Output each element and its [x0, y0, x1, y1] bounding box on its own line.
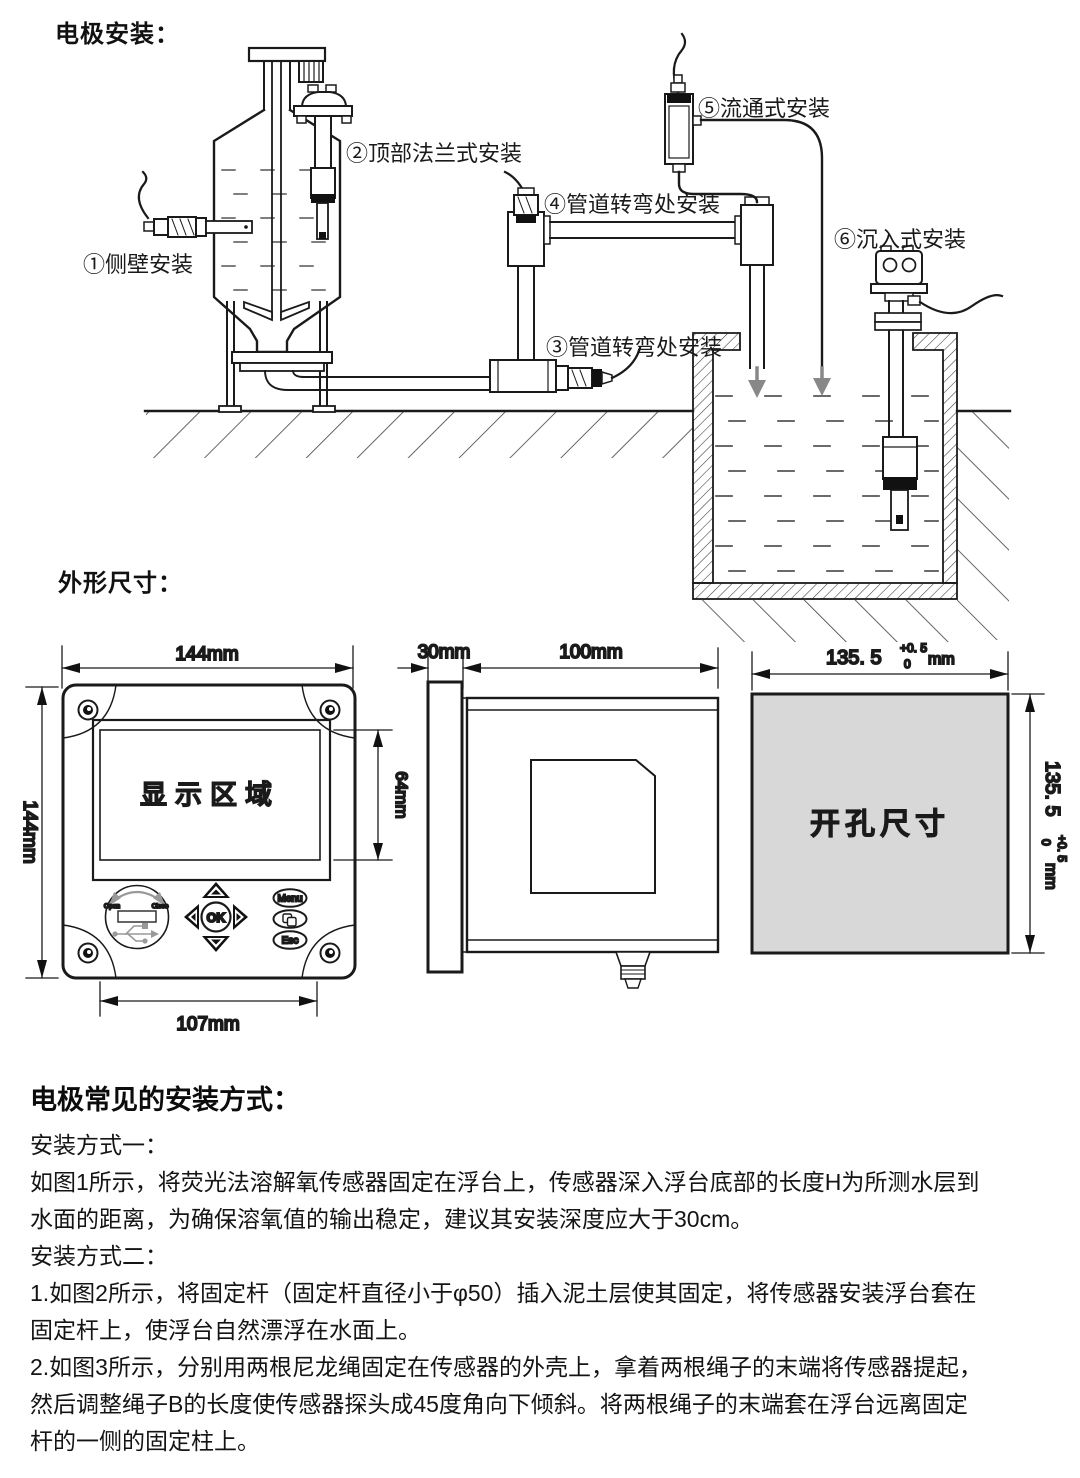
svg-text:mm: mm	[1042, 863, 1059, 890]
text-line: 水面的距离，为确保溶氧值的输出稳定，建议其安装深度应大于30cm。	[30, 1201, 1060, 1238]
svg-text:mm: mm	[928, 651, 955, 668]
label-pipe-bend-install-4: ④管道转弯处安装	[544, 187, 720, 219]
text-line: 然后调整绳子B的长度使传感器探头成45度角向下倾斜。将两根绳子的末端套在浮台远离…	[30, 1386, 1060, 1423]
ok-button[interactable]: OK	[202, 903, 231, 932]
ground-hatch	[145, 411, 1010, 642]
usb-dial[interactable]: Open Close	[104, 886, 169, 949]
cable-gland	[616, 952, 650, 988]
right-arrow-button[interactable]	[233, 904, 248, 930]
install-methods-heading: 电极常见的安装方式：	[30, 1078, 1060, 1117]
left-arrow-button[interactable]	[184, 904, 199, 930]
front-view: 144mm 144mm 显示区域	[19, 644, 411, 1035]
cutout-label: 开孔尺寸	[810, 808, 950, 841]
label-pipe-bend-install-3: ③管道转弯处安装	[546, 330, 722, 362]
panel-depth-dim: 30mm	[418, 642, 471, 663]
up-arrow-button[interactable]	[202, 882, 230, 898]
usb-open-label: Open	[104, 903, 120, 910]
down-arrow-button[interactable]	[202, 936, 230, 952]
install-methods-section: 电极常见的安装方式： 安装方式一： 如图1所示，将荧光法溶解氧传感器固定在浮台上…	[30, 1078, 1060, 1460]
usb-close-label: Close	[152, 903, 169, 910]
cutout-height-dim: 135. 5 +0. 5 0 mm	[1039, 761, 1069, 890]
cutout-view: 135. 5 +0. 5 0 mm 开孔尺寸 135. 5 +0. 5 0 mm	[752, 641, 1069, 953]
front-height-dim: 144mm	[19, 800, 40, 863]
text-line: 1.如图2所示，将固定杆（固定杆直径小于φ50）插入泥土层使其固定，将传感器安装…	[30, 1275, 1060, 1312]
dimension-drawings: 144mm 144mm 显示区域	[0, 630, 1080, 1050]
screen-height-dim: 64mm	[392, 771, 411, 818]
display-area-text: 显示区域	[140, 780, 280, 810]
installation-diagram	[0, 0, 1080, 648]
cutout-width-dim: 135. 5 +0. 5 0 mm	[826, 641, 955, 671]
dpad: OK	[184, 882, 248, 952]
usb-icon	[112, 923, 159, 944]
ok-button-label: OK	[207, 911, 226, 925]
label-top-flange-install: ②顶部法兰式安装	[346, 136, 522, 168]
menu-button-label: Menu	[277, 894, 302, 905]
label-side-wall-install: ①侧壁安装	[83, 247, 193, 279]
text-line: 固定杆上，使浮台自然漂浮在水面上。	[30, 1312, 1060, 1349]
label-flow-cell-install: ⑤流通式安装	[698, 91, 830, 123]
dimensions-title: 外形尺寸：	[58, 563, 183, 598]
svg-text:+0. 5: +0. 5	[900, 641, 927, 655]
text-line: 安装方式一：	[30, 1127, 1060, 1164]
front-width-dim: 144mm	[175, 644, 238, 665]
svg-text:135. 5: 135. 5	[1041, 761, 1063, 817]
text-line: 2.如图3所示，分别用两根尼龙绳固定在传感器的外壳上，拿着两根绳子的末端将传感器…	[30, 1349, 1060, 1386]
text-line: 安装方式二：	[30, 1238, 1060, 1275]
side-view: 30mm 100mm	[398, 642, 718, 988]
screens-icon	[283, 914, 296, 926]
menu-button[interactable]: Menu	[274, 889, 307, 907]
front-bottom-dim: 107mm	[176, 1014, 239, 1035]
svg-text:0: 0	[904, 657, 911, 671]
svg-text:+0. 5: +0. 5	[1055, 835, 1069, 862]
esc-button[interactable]: Esc	[274, 931, 307, 949]
esc-button-label: Esc	[282, 936, 299, 947]
text-line: 杆的一侧的固定柱上。	[30, 1423, 1060, 1460]
manual-page: 电极安装：	[0, 0, 1080, 1478]
svg-text:0: 0	[1039, 839, 1053, 846]
body-depth-dim: 100mm	[559, 642, 622, 663]
svg-text:135. 5: 135. 5	[826, 647, 882, 669]
label-submersion-install: ⑥沉入式安装	[834, 222, 966, 254]
screen-switch-button[interactable]	[274, 910, 307, 928]
text-line: 如图1所示，将荧光法溶解氧传感器固定在浮台上，传感器深入浮台底部的长度H为所测水…	[30, 1164, 1060, 1201]
